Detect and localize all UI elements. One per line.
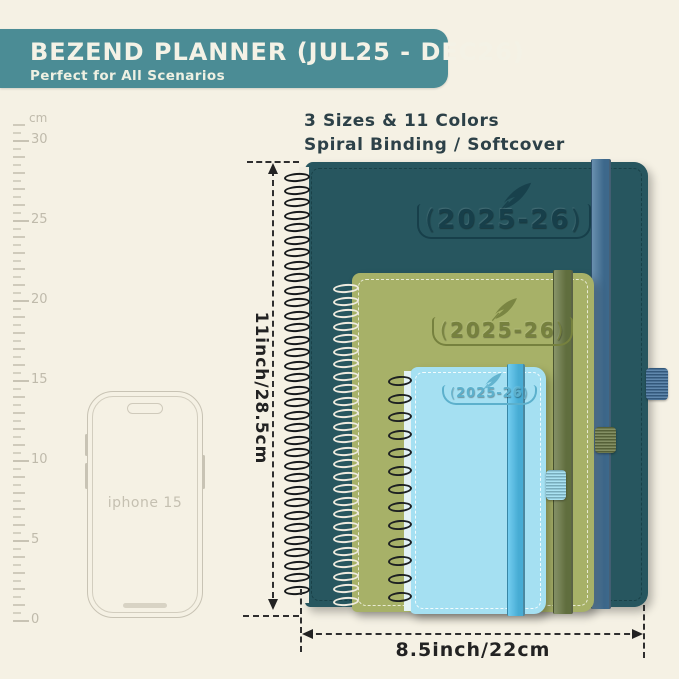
volume-down-button: [85, 463, 88, 489]
year-emboss: (2025-26): [432, 317, 573, 346]
coil-ring: [333, 408, 360, 419]
ruler-tick: [13, 284, 25, 286]
coil-ring: [284, 372, 311, 383]
coil-ring: [284, 210, 311, 221]
iphone-outline: iphone 15: [87, 391, 203, 618]
ruler-tick: [13, 596, 21, 598]
dim-tick-right: [643, 605, 645, 658]
coil-ring: [333, 496, 360, 507]
coil-ring: [284, 560, 311, 571]
coil-ring: [333, 508, 360, 519]
coil-ring: [333, 321, 360, 332]
paren-open: (: [450, 386, 456, 401]
ruler-tick: [13, 172, 25, 174]
dim-tick-left: [300, 589, 302, 652]
dim-tick-bottom: [243, 615, 299, 617]
coil-ring: [333, 421, 360, 432]
coil-ring: [284, 547, 311, 558]
paren-close: ): [571, 205, 583, 235]
ruler-tick: [13, 500, 21, 502]
ruler-tick: [13, 348, 25, 350]
ruler-tick: [13, 380, 29, 382]
ruler-tick: [13, 236, 25, 238]
coil-ring: [284, 422, 311, 433]
feature-line-sizes: 3 Sizes & 11 Colors: [304, 109, 565, 133]
coil-ring: [284, 535, 311, 546]
ruler-tick: [13, 196, 21, 198]
paren-close: ): [523, 386, 529, 401]
ruler-tick: [13, 524, 25, 526]
ruler-tick: [13, 396, 25, 398]
ruler-tick: [13, 212, 21, 214]
pen-loop: [595, 427, 616, 453]
width-dimension-label: 8.5inch/22cm: [363, 639, 583, 661]
ruler-tick: [13, 148, 21, 150]
ruler-tick: [13, 540, 29, 542]
ruler-tick: [13, 580, 21, 582]
ruler-tick: [13, 244, 21, 246]
ruler-tick: [13, 140, 29, 142]
ruler-tick: [13, 276, 21, 278]
coil-ring: [284, 397, 311, 408]
ruler-tick: [13, 612, 21, 614]
coil-ring: [333, 471, 360, 482]
ruler-tick: [13, 460, 29, 462]
page-subtitle: Perfect for All Scenarios: [30, 68, 448, 84]
ruler-tick: [13, 228, 21, 230]
ruler-tick: [13, 452, 21, 454]
ruler-tick: [13, 188, 25, 190]
ruler-tick: [13, 532, 21, 534]
coil-ring: [284, 285, 311, 296]
coil-ring: [284, 460, 311, 471]
ruler-tick: [13, 428, 25, 430]
spiral-binding-large: [284, 173, 310, 598]
coil-ring: [388, 483, 413, 495]
arrow-up-icon: [268, 163, 278, 174]
ruler-tick: [13, 388, 21, 390]
ruler-number: 20: [31, 292, 48, 307]
coil-ring: [284, 272, 311, 283]
coil-ring: [333, 346, 360, 357]
coil-ring: [284, 322, 311, 333]
coil-ring: [284, 310, 311, 321]
page-title: BEZEND PLANNER (JUL25 - DEC26): [30, 38, 448, 66]
coil-ring: [333, 296, 360, 307]
coil-ring: [388, 447, 413, 459]
coil-ring: [388, 519, 413, 531]
year-label: 2025-26: [437, 205, 570, 235]
ruler-tick: [13, 588, 25, 590]
ruler-tick: [13, 260, 21, 262]
ruler-tick: [13, 412, 25, 414]
coil-ring: [333, 383, 360, 394]
ruler-tick: [13, 572, 25, 574]
coil-ring: [284, 222, 311, 233]
feature-line-binding: Spiral Binding / Softcover: [304, 133, 565, 157]
planner-small: (2025-26): [410, 367, 546, 614]
coil-ring: [284, 510, 311, 521]
coil-ring: [333, 308, 360, 319]
coil-ring: [284, 497, 311, 508]
phone-screen: iphone 15: [92, 396, 198, 613]
coil-ring: [388, 393, 413, 405]
coil-ring: [284, 247, 311, 258]
coil-ring: [284, 385, 311, 396]
ruler-tick: [13, 356, 21, 358]
coil-ring: [333, 583, 360, 594]
ruler-tick: [13, 404, 21, 406]
ruler-tick: [13, 308, 21, 310]
year-emboss: (2025-26): [417, 204, 591, 239]
coil-ring: [333, 483, 360, 494]
spiral-binding-small: [388, 376, 412, 610]
coil-ring: [388, 537, 413, 549]
dynamic-island: [127, 403, 163, 414]
ruler-tick: [13, 564, 21, 566]
coil-ring: [333, 283, 360, 294]
coil-ring: [333, 596, 360, 607]
coil-ring: [388, 591, 413, 603]
ruler-tick: [13, 164, 21, 166]
coil-ring: [333, 558, 360, 569]
coil-ring: [333, 358, 360, 369]
spiral-binding-medium: [333, 284, 359, 609]
coil-ring: [333, 521, 360, 532]
ruler-tick: [13, 476, 25, 478]
ruler-tick: [13, 156, 25, 158]
coil-ring: [284, 485, 311, 496]
coil-ring: [284, 447, 311, 458]
arrow-left-icon: [302, 629, 313, 639]
ruler-number: 25: [31, 212, 48, 227]
coil-ring: [388, 411, 413, 423]
ruler-tick: [13, 468, 21, 470]
ruler-tick: [13, 364, 25, 366]
year-emboss: (2025-26): [442, 385, 537, 405]
ruler-tick: [13, 252, 25, 254]
coil-ring: [284, 360, 311, 371]
coil-ring: [388, 429, 413, 441]
paren-open: (: [440, 318, 450, 342]
coil-ring: [333, 571, 360, 582]
ruler-tick: [13, 508, 25, 510]
ruler-tick: [13, 124, 25, 126]
coil-ring: [284, 347, 311, 358]
product-infographic: BEZEND PLANNER (JUL25 - DEC26) Perfect f…: [0, 0, 679, 679]
home-indicator: [123, 603, 167, 608]
coil-ring: [388, 465, 413, 477]
width-dimension-line: [306, 633, 640, 635]
coil-ring: [284, 297, 311, 308]
coil-ring: [388, 501, 413, 513]
ruler-number: 0: [31, 612, 39, 627]
coil-ring: [388, 555, 413, 567]
ruler-number: 5: [31, 532, 39, 547]
arrow-down-icon: [268, 599, 278, 610]
ruler-tick: [13, 372, 21, 374]
year-label: 2025-26: [450, 318, 556, 342]
phone-label: iphone 15: [93, 495, 197, 511]
paren-close: ): [556, 318, 566, 342]
ruler-tick: [13, 556, 25, 558]
ruler-tick: [13, 300, 29, 302]
coil-ring: [284, 585, 311, 596]
ruler-tick: [13, 620, 29, 622]
paren-open: (: [425, 205, 437, 235]
year-label: 2025-26: [456, 386, 523, 401]
ruler-tick: [13, 180, 21, 182]
ruler-tick: [13, 332, 25, 334]
coil-ring: [284, 172, 311, 183]
coil-ring: [333, 458, 360, 469]
coil-ring: [333, 333, 360, 344]
header-banner: BEZEND PLANNER (JUL25 - DEC26) Perfect f…: [0, 29, 448, 88]
coil-ring: [388, 375, 413, 387]
elastic-band: [591, 159, 611, 609]
ruler-tick: [13, 484, 21, 486]
ruler-tick: [13, 324, 21, 326]
ruler-tick: [13, 444, 25, 446]
coil-ring: [333, 546, 360, 557]
power-button: [202, 455, 205, 489]
height-dimension-line: [272, 170, 274, 608]
coil-ring: [333, 371, 360, 382]
ruler-tick: [13, 436, 21, 438]
volume-up-button: [85, 434, 88, 456]
ruler-tick: [13, 220, 29, 222]
coil-ring: [284, 472, 311, 483]
ruler-tick: [13, 548, 21, 550]
coil-ring: [284, 335, 311, 346]
coil-ring: [284, 435, 311, 446]
coil-ring: [333, 433, 360, 444]
arrow-right-icon: [632, 629, 643, 639]
coil-ring: [284, 522, 311, 533]
coil-ring: [284, 235, 311, 246]
coil-ring: [284, 260, 311, 271]
ruler-tick: [13, 492, 25, 494]
ruler-tick: [13, 516, 21, 518]
ruler-number: 30: [31, 132, 48, 147]
pen-loop: [646, 368, 668, 400]
ruler-tick: [13, 340, 21, 342]
ruler-tick: [13, 132, 21, 134]
coil-ring: [333, 446, 360, 457]
ruler-tick: [13, 420, 21, 422]
ruler-unit-label: cm: [29, 111, 47, 125]
ruler-tick: [13, 316, 25, 318]
ruler-tick: [13, 204, 25, 206]
coil-ring: [284, 410, 311, 421]
coil-ring: [284, 197, 311, 208]
coil-ring: [284, 572, 311, 583]
feature-text: 3 Sizes & 11 Colors Spiral Binding / Sof…: [304, 109, 565, 157]
coil-ring: [284, 185, 311, 196]
coil-ring: [333, 533, 360, 544]
ruler-tick: [13, 292, 21, 294]
coil-ring: [388, 573, 413, 585]
pen-loop: [546, 470, 566, 500]
ruler-tick: [13, 268, 25, 270]
height-dimension-label: 11inch/28.5cm: [249, 306, 271, 470]
ruler-tick: [13, 604, 25, 606]
ruler-number: 15: [31, 372, 48, 387]
ruler-number: 10: [31, 452, 48, 467]
coil-ring: [333, 396, 360, 407]
